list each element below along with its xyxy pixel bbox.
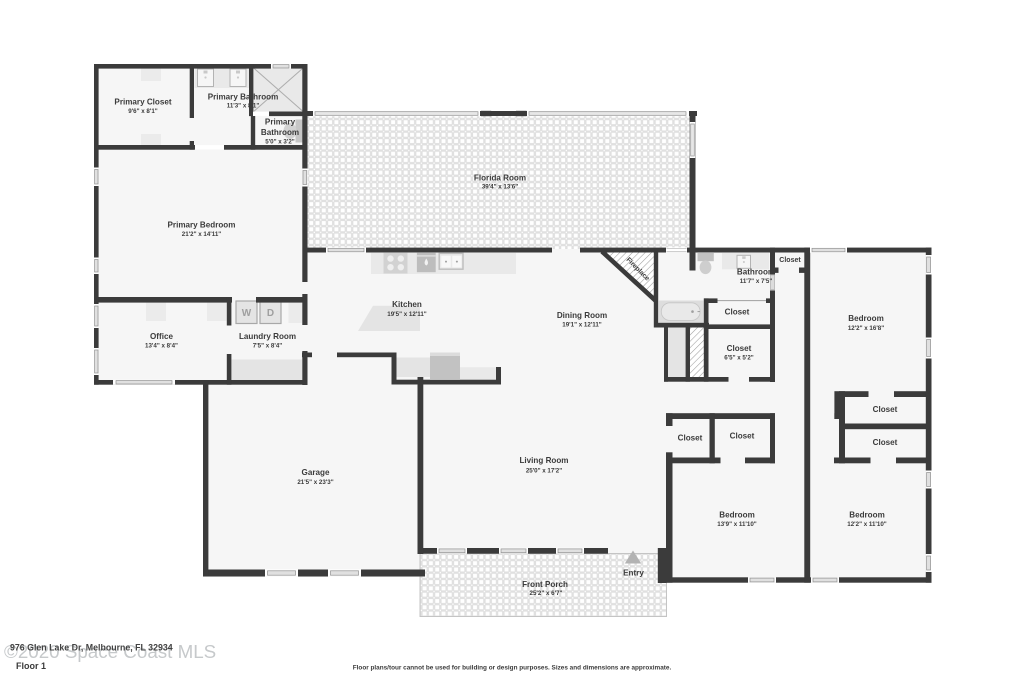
svg-text:Front Porch: Front Porch [522, 580, 568, 589]
svg-text:Kitchen: Kitchen [392, 300, 422, 309]
svg-text:21'5" x 23'3": 21'5" x 23'3" [297, 479, 333, 486]
svg-text:Closet: Closet [730, 432, 755, 441]
svg-text:Living Room: Living Room [519, 456, 568, 465]
svg-text:Floor 1: Floor 1 [16, 661, 46, 671]
svg-text:9'6" x 8'1": 9'6" x 8'1" [128, 108, 158, 115]
svg-text:Entry: Entry [623, 569, 644, 578]
svg-text:25'2" x 6'7": 25'2" x 6'7" [530, 590, 563, 597]
svg-text:976 Glen Lake Dr, Melbourne, F: 976 Glen Lake Dr, Melbourne, FL 32934 [10, 643, 173, 653]
svg-text:Bedroom: Bedroom [719, 511, 755, 520]
svg-text:12'2" x 11'10": 12'2" x 11'10" [847, 521, 887, 528]
svg-text:Bedroom: Bedroom [849, 511, 885, 520]
svg-text:Closet: Closet [725, 308, 750, 317]
svg-text:6'5" x 5'2": 6'5" x 5'2" [724, 355, 754, 362]
svg-text:Primary: Primary [265, 118, 296, 127]
svg-text:Closet: Closet [727, 344, 752, 353]
svg-text:11'7" x 7'5": 11'7" x 7'5" [740, 278, 773, 285]
svg-text:W: W [242, 308, 252, 319]
svg-text:12'2" x 16'8": 12'2" x 16'8" [848, 325, 884, 332]
svg-text:25'0" x 17'2": 25'0" x 17'2" [526, 468, 562, 475]
svg-text:39'4" x 13'6": 39'4" x 13'6" [482, 184, 518, 191]
svg-text:Closet: Closet [873, 405, 898, 414]
svg-text:Bedroom: Bedroom [848, 314, 884, 323]
svg-text:D: D [267, 308, 274, 319]
svg-text:Laundry Room: Laundry Room [239, 332, 296, 341]
svg-text:5'0" x 3'2": 5'0" x 3'2" [265, 138, 295, 145]
svg-text:Closet: Closet [678, 434, 703, 443]
svg-text:Garage: Garage [302, 468, 330, 477]
svg-text:21'2" x 14'11": 21'2" x 14'11" [182, 231, 222, 238]
svg-text:Office: Office [150, 332, 173, 341]
svg-text:7'5" x 8'4": 7'5" x 8'4" [253, 342, 283, 349]
svg-text:13'9" x 11'10": 13'9" x 11'10" [717, 521, 757, 528]
svg-text:19'5" x 12'11": 19'5" x 12'11" [387, 311, 427, 318]
svg-text:11'3" x 8'1": 11'3" x 8'1" [227, 102, 260, 109]
svg-text:Dining Room: Dining Room [557, 311, 607, 320]
svg-text:Primary Bedroom: Primary Bedroom [168, 220, 236, 229]
svg-text:Primary Closet: Primary Closet [114, 97, 171, 106]
svg-text:19'1" x 12'11": 19'1" x 12'11" [562, 322, 602, 329]
svg-text:Closet: Closet [873, 438, 898, 447]
svg-text:Closet: Closet [779, 257, 801, 264]
svg-text:Florida Room: Florida Room [474, 174, 526, 183]
svg-text:13'4" x 8'4": 13'4" x 8'4" [145, 342, 178, 349]
svg-text:Bathroom: Bathroom [261, 128, 299, 137]
svg-text:Bathroom: Bathroom [737, 267, 775, 276]
svg-text:Floor plans/tour cannot be use: Floor plans/tour cannot be used for buil… [353, 665, 672, 672]
svg-text:Primary Bathroom: Primary Bathroom [208, 92, 279, 101]
